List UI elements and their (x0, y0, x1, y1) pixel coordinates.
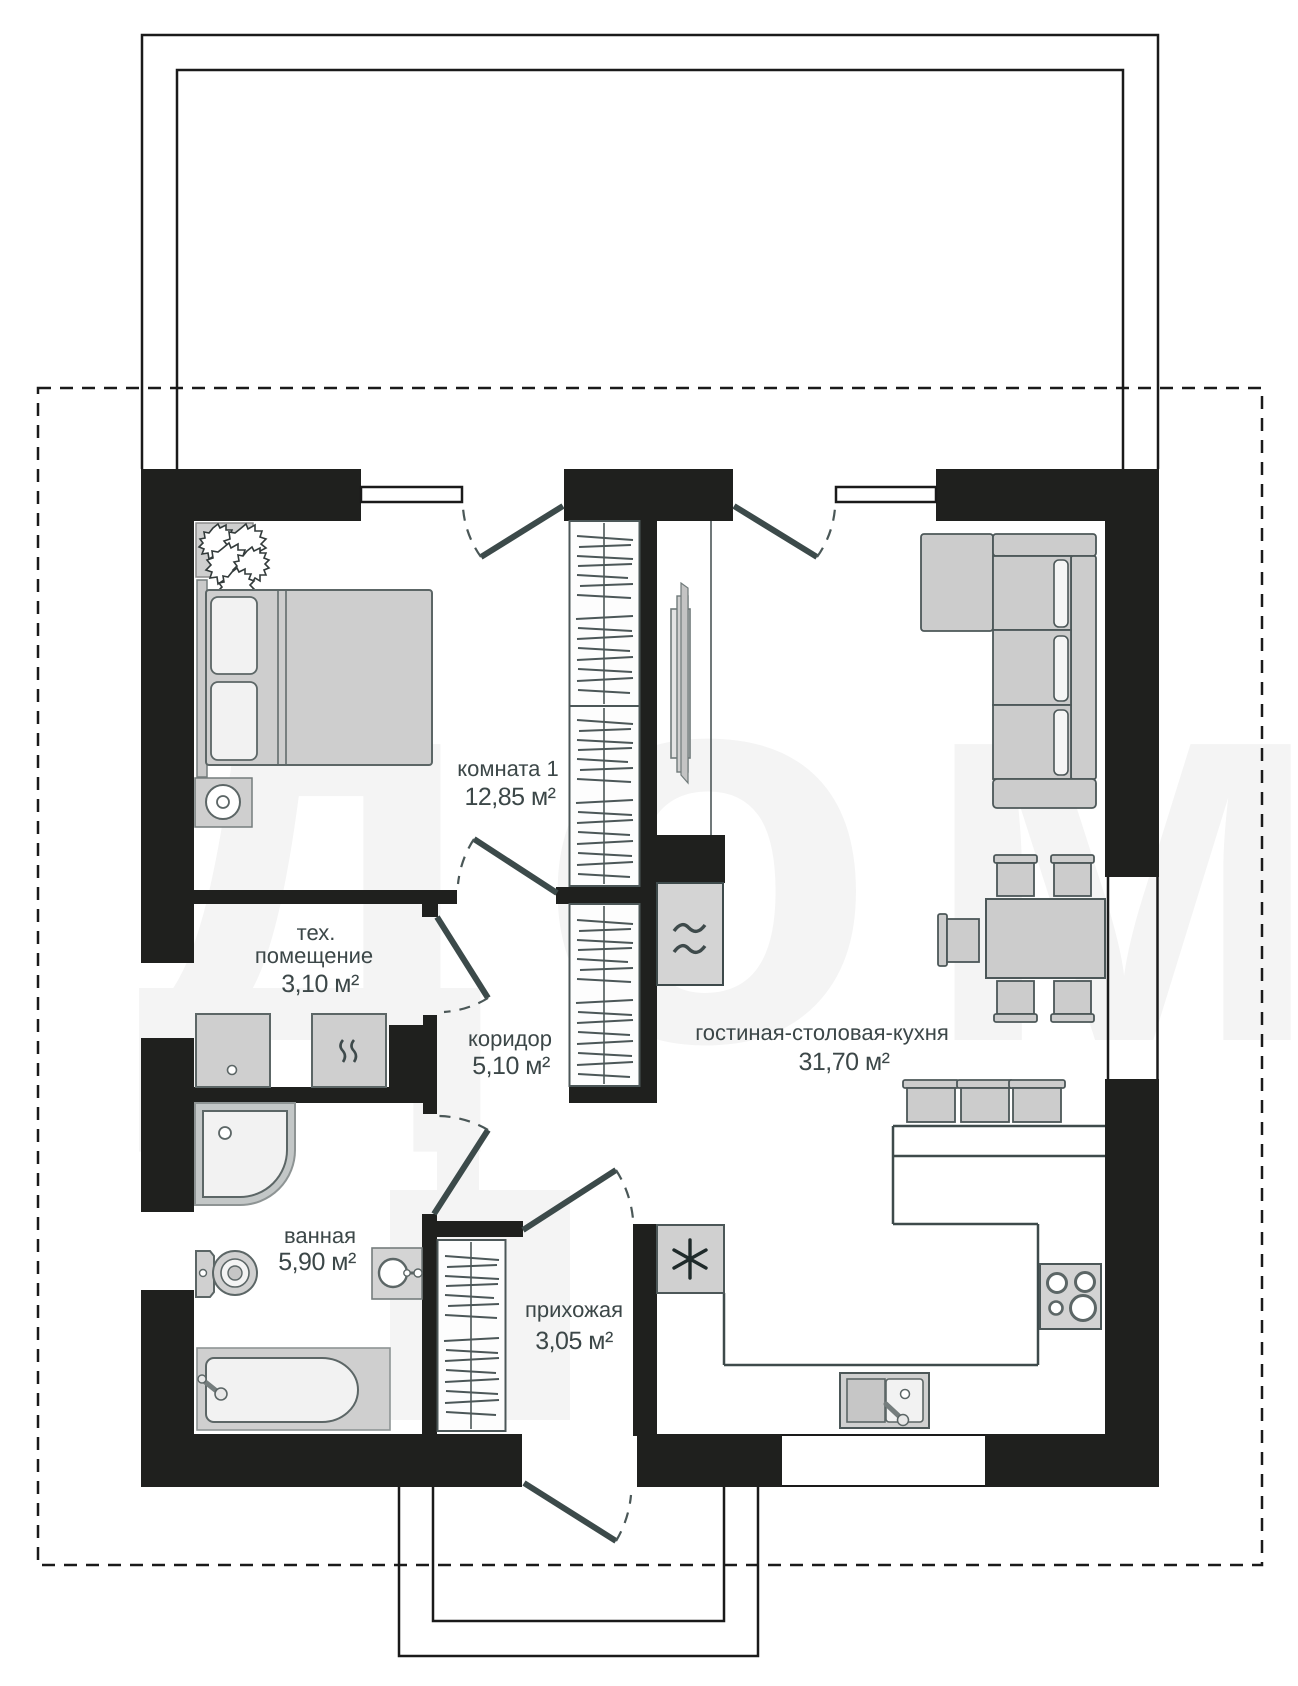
svg-text:тех.: тех. (297, 920, 336, 945)
svg-text:комната 1: комната 1 (457, 756, 559, 781)
svg-text:ванная: ванная (284, 1223, 356, 1248)
svg-text:5,10 м²: 5,10 м² (472, 1052, 550, 1080)
svg-text:коридор: коридор (468, 1026, 552, 1051)
svg-text:31,70 м²: 31,70 м² (798, 1048, 889, 1076)
svg-text:5,90 м²: 5,90 м² (278, 1248, 356, 1276)
svg-text:3,05 м²: 3,05 м² (535, 1327, 613, 1355)
svg-text:3,10 м²: 3,10 м² (281, 970, 359, 998)
svg-text:12,85 м²: 12,85 м² (464, 783, 555, 811)
svg-text:прихожая: прихожая (525, 1297, 623, 1322)
svg-text:помещение: помещение (255, 943, 373, 968)
svg-text:гостиная-столовая-кухня: гостиная-столовая-кухня (695, 1020, 949, 1045)
